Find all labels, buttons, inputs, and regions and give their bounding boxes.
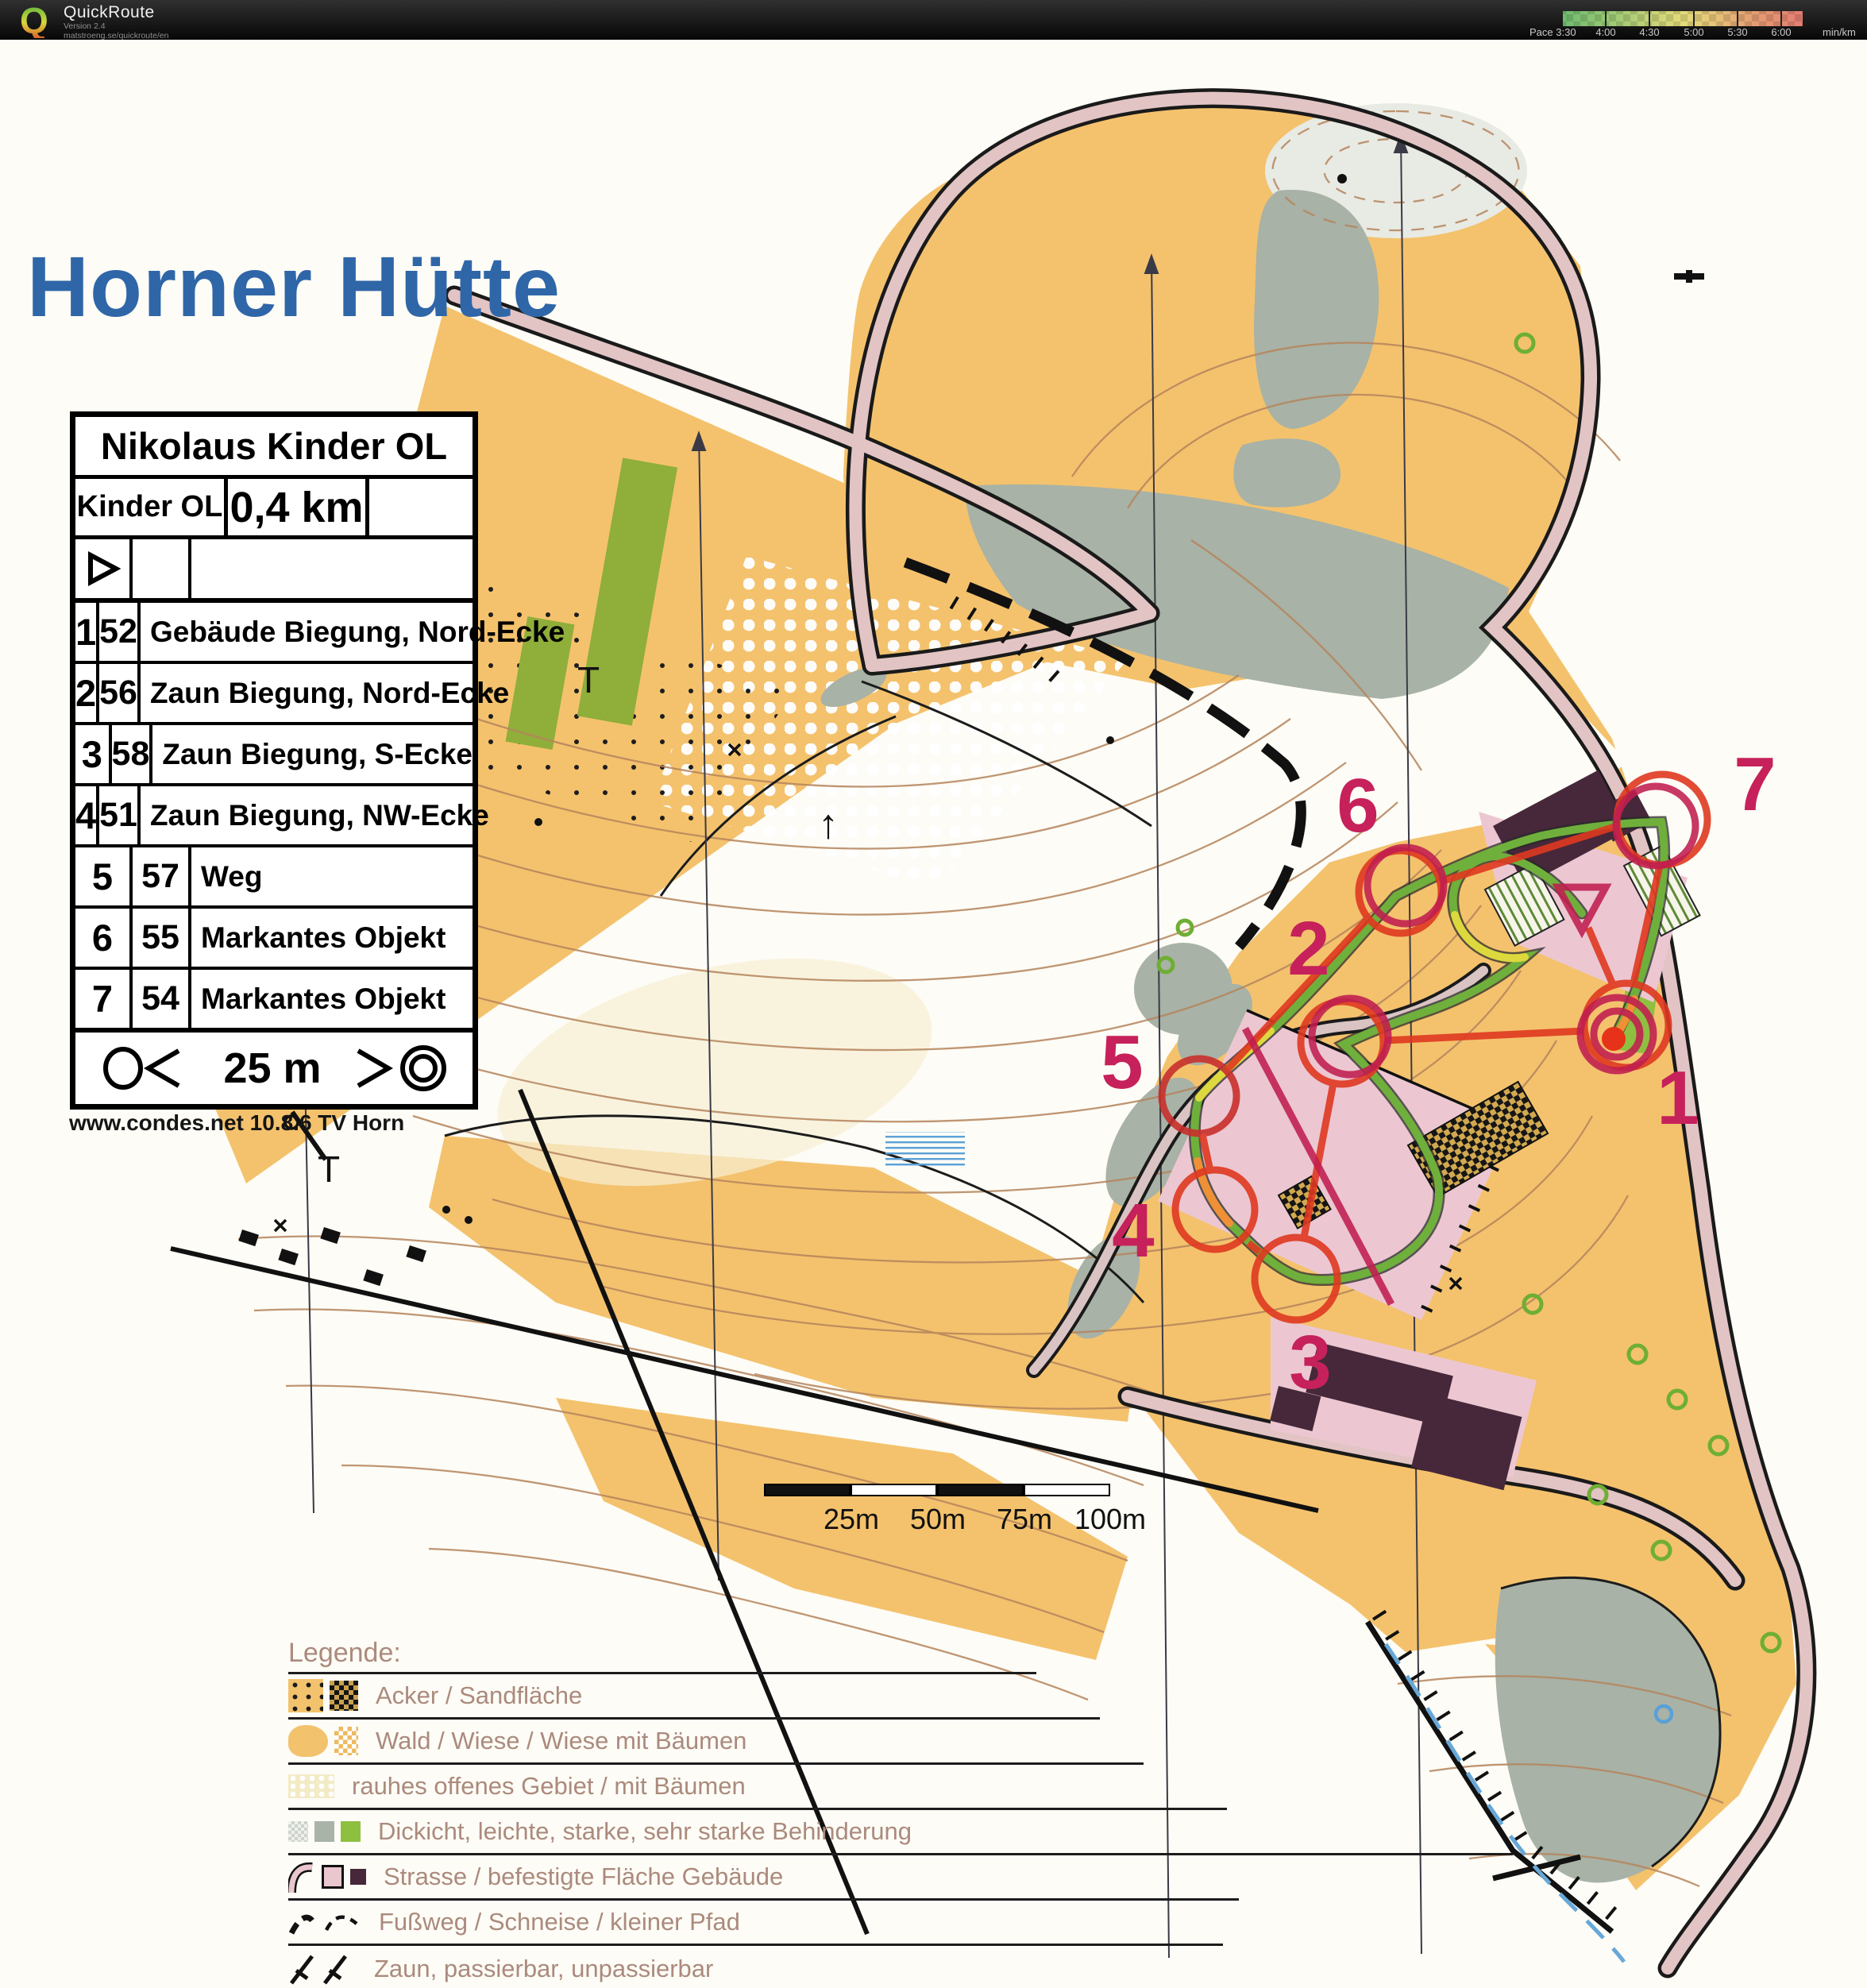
condes-credit: www.condes.net 10.8.6 TV Horn — [69, 1110, 404, 1136]
svg-text:Q: Q — [20, 2, 48, 38]
app-header: Q QuickRoute Version 2.4 matstroeng.se/q… — [0, 0, 1867, 40]
thicket-light-swatch-icon — [288, 1821, 308, 1842]
sand-swatch-icon — [330, 1681, 358, 1711]
legend-item: Zaun, passierbar, unpassierbar — [288, 1946, 1513, 1988]
start-code-cell — [133, 539, 191, 598]
control-desc: Weg — [191, 847, 473, 905]
control-code: 57 — [133, 847, 191, 905]
control-code: 55 — [133, 909, 191, 967]
legend-label: rauhes offenes Gebiet / mit Bäumen — [352, 1772, 746, 1801]
legend-label: Acker / Sandfläche — [376, 1681, 582, 1710]
svg-text:7: 7 — [1734, 742, 1776, 827]
control-desc: Zaun Biegung, S-Ecke — [152, 725, 473, 783]
control-desc: Zaun Biegung, Nord-Ecke — [141, 664, 509, 722]
control-description-card: Nikolaus Kinder OL Kinder OL 0,4 km 1 52… — [70, 411, 478, 1110]
fence-swatch-icon — [288, 1953, 357, 1985]
thicket-strong-swatch-icon — [341, 1821, 361, 1842]
control-spacing: 25 m — [195, 1044, 350, 1093]
course-length: 0,4 km — [228, 479, 369, 535]
legend-title: Legende: — [288, 1638, 1036, 1674]
svg-text:3: 3 — [1289, 1320, 1331, 1405]
legend-label: Fußweg / Schneise / kleiner Pfad — [379, 1908, 740, 1936]
control-number: 2 — [75, 664, 99, 722]
building-swatch-icon — [350, 1869, 366, 1885]
legend-label: Wald / Wiese / Wiese mit Bäumen — [376, 1727, 746, 1755]
scale-label: 100m — [1074, 1503, 1146, 1536]
legend-label: Dickicht, leichte, starke, sehr starke B… — [378, 1817, 912, 1846]
map-legend: Legende: Acker / Sandfläche Wald / Wiese… — [288, 1638, 1513, 1988]
wiese-swatch-icon — [334, 1727, 358, 1755]
app-name: QuickRoute — [64, 3, 155, 22]
scale-label: 25m — [824, 1503, 879, 1536]
control-row: 7 54 Markantes Objekt — [75, 970, 473, 1031]
pace-tick-label: 4:30 — [1639, 26, 1659, 38]
legend-item: Strasse / befestigte Fläche Gebäude — [288, 1855, 1239, 1901]
control-number: 1 — [75, 603, 99, 661]
control-desc: Gebäude Biegung, Nord-Ecke — [141, 603, 565, 661]
control-code: 54 — [133, 970, 191, 1028]
event-title: Nikolaus Kinder OL — [75, 417, 473, 479]
quickroute-window: T T ↑ — [0, 0, 1867, 1988]
legend-label: Zaun, passierbar, unpassierbar — [374, 1955, 713, 1983]
control-desc: Zaun Biegung, NW-Ecke — [141, 786, 489, 844]
pace-legend: Pace 3:30 4:00 4:30 5:00 5:30 6:00 min/k… — [1509, 0, 1867, 40]
control-number: 4 — [75, 786, 99, 844]
legend-item: rauhes offenes Gebiet / mit Bäumen — [288, 1765, 1227, 1810]
control-code: 58 — [112, 725, 153, 783]
card-footer-row: 25 m — [75, 1031, 473, 1104]
control-number: 7 — [75, 970, 133, 1028]
wald-swatch-icon — [288, 1725, 328, 1757]
pace-label-prefix: Pace 3:30 — [1529, 26, 1576, 38]
pace-tick-label: 5:30 — [1727, 26, 1747, 38]
course-name: Kinder OL — [75, 479, 228, 535]
road-swatch-icon — [288, 1859, 315, 1894]
pace-tick-label: 6:00 — [1771, 26, 1791, 38]
svg-text:2: 2 — [1287, 906, 1329, 991]
finish-circles-icon — [350, 1044, 453, 1092]
legend-item: Acker / Sandfläche — [288, 1674, 1100, 1720]
start-symbol-cell — [75, 539, 133, 598]
legend-item: Wald / Wiese / Wiese mit Bäumen — [288, 1720, 1144, 1765]
map-letter-t2: T — [318, 1148, 340, 1190]
control-desc: Markantes Objekt — [191, 970, 473, 1028]
legend-item: Dickicht, leichte, starke, sehr starke B… — [288, 1810, 1513, 1855]
start-desc-cell — [191, 539, 473, 598]
rough-open-swatch-icon — [288, 1774, 334, 1798]
quickroute-logo-icon: Q — [17, 2, 54, 38]
control-number: 6 — [75, 909, 133, 967]
course-header-row: Kinder OL 0,4 km — [75, 479, 473, 539]
control-code: 52 — [99, 603, 141, 661]
svg-text:4: 4 — [1112, 1188, 1154, 1273]
legend-label: Strasse / befestigte Fläche Gebäude — [384, 1863, 783, 1891]
control-row: 4 51 Zaun Biegung, NW-Ecke — [75, 786, 473, 847]
scale-bar: 25m 50m 75m 100m — [762, 1471, 1117, 1527]
scale-label: 50m — [910, 1503, 966, 1536]
control-code: 56 — [99, 664, 141, 722]
acker-swatch-icon — [288, 1679, 323, 1712]
pace-gradient-bar — [1563, 11, 1803, 26]
pace-unit: min/km — [1823, 26, 1856, 38]
map-title: Horner Hütte — [27, 237, 561, 336]
control-number: 3 — [75, 725, 112, 783]
control-row: 1 52 Gebäude Biegung, Nord-Ecke — [75, 603, 473, 664]
thicket-medium-swatch-icon — [314, 1821, 334, 1842]
pace-tick-label: 5:00 — [1684, 26, 1703, 38]
control-row: 5 57 Weg — [75, 847, 473, 909]
control-row: 6 55 Markantes Objekt — [75, 909, 473, 970]
paved-swatch-icon — [322, 1865, 344, 1889]
map-letter-t1: T — [577, 659, 600, 701]
pace-tick-label: 4:00 — [1595, 26, 1615, 38]
footpath-swatch-icon — [288, 1906, 361, 1938]
start-row — [75, 539, 473, 603]
svg-text:1: 1 — [1657, 1056, 1699, 1141]
legend-item: Fußweg / Schneise / kleiner Pfad — [288, 1901, 1223, 1946]
control-row: 3 58 Zaun Biegung, S-Ecke — [75, 725, 473, 786]
control-code: 51 — [99, 786, 141, 844]
svg-text:5: 5 — [1101, 1020, 1143, 1105]
control-number: 5 — [75, 847, 133, 905]
finish-chute-icon — [99, 1044, 195, 1092]
control-desc: Markantes Objekt — [191, 909, 473, 967]
start-triangle-icon — [84, 550, 121, 587]
course-header-spare — [369, 479, 473, 535]
direction-arrow-icon: ↑ — [818, 801, 839, 847]
app-url[interactable]: matstroeng.se/quickroute/en — [64, 31, 169, 41]
scale-label: 75m — [997, 1503, 1052, 1536]
svg-text:6: 6 — [1337, 763, 1379, 848]
app-version: Version 2.4 — [64, 21, 106, 31]
control-row: 2 56 Zaun Biegung, Nord-Ecke — [75, 664, 473, 725]
